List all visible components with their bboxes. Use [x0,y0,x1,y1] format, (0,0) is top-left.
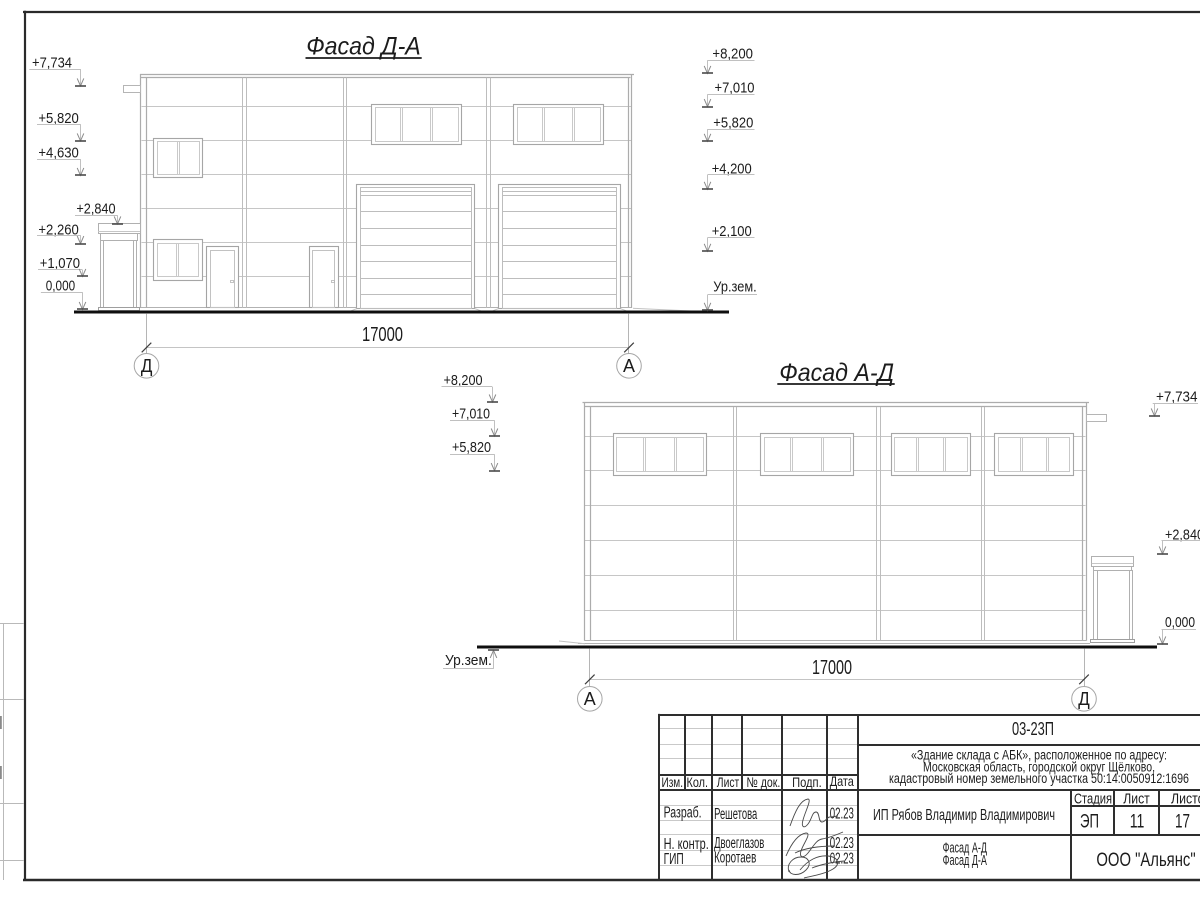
svg-text:Лист: Лист [717,774,740,790]
svg-text:Д: Д [141,356,153,376]
svg-text:Решетова: Решетова [714,806,757,823]
svg-text:А: А [584,689,596,709]
svg-text:Стадия: Стадия [1074,790,1112,807]
svg-text:Коротаев: Коротаев [714,849,756,866]
svg-text:Подп.: Подп. [792,774,822,790]
svg-text:Фасад Д-А: Фасад Д-А [943,852,987,869]
svg-text:Дата: Дата [830,773,854,789]
svg-text:А: А [623,356,635,376]
svg-text:Разраб.: Разраб. [664,805,702,822]
svg-text:Фасад Д-А: Фасад Д-А [306,33,421,61]
svg-text:+5,820: +5,820 [452,439,491,456]
svg-text:17: 17 [1175,812,1190,833]
svg-text:+7,734: +7,734 [32,54,72,71]
svg-text:Кол.: Кол. [687,774,709,790]
svg-text:02.23: 02.23 [830,835,854,852]
svg-text:02.23: 02.23 [830,851,854,868]
svg-text:ГИП: ГИП [664,851,684,868]
svg-text:17000: 17000 [812,657,852,679]
svg-text:Листов: Листов [1171,790,1200,807]
svg-text:ИП Рябов Владимир Владимирович: ИП Рябов Владимир Владимирович [873,807,1055,824]
svg-text:11: 11 [1130,812,1145,833]
svg-text:17000: 17000 [362,324,403,346]
svg-text:03-23П: 03-23П [1012,719,1054,739]
svg-text:Д: Д [1078,689,1090,709]
svg-text:ООО "Альянс": ООО "Альянс" [1096,850,1195,871]
svg-text:+5,820: +5,820 [713,114,753,131]
svg-text:кадастровый номер земельного у: кадастровый номер земельного участка 50:… [889,771,1189,786]
svg-text:Изм.: Изм. [662,774,684,790]
svg-text:Лист: Лист [1123,790,1150,807]
svg-text:02.23: 02.23 [830,806,854,823]
svg-text:Фасад А-Д: Фасад А-Д [779,359,894,387]
svg-text:№ док.: № док. [746,774,780,790]
svg-text:Ур.зем.: Ур.зем. [445,652,492,669]
svg-text:0,000: 0,000 [1165,614,1195,631]
svg-text:ЭП: ЭП [1080,812,1099,833]
svg-text:+8,200: +8,200 [712,46,753,63]
svg-text:+7,734: +7,734 [1156,388,1198,405]
svg-text:Ур.зем.: Ур.зем. [713,278,756,295]
